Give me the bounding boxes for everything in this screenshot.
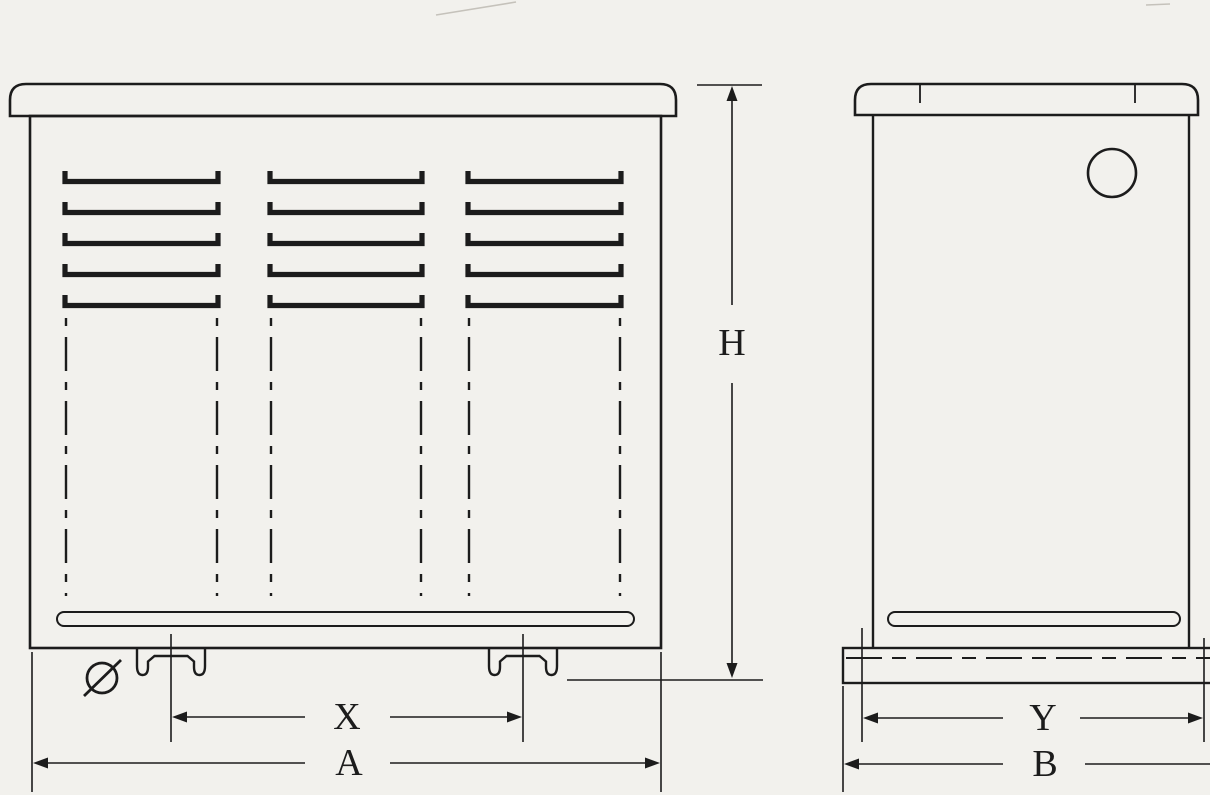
arrowhead-right: [507, 712, 522, 723]
scratch-mark: [1146, 4, 1170, 5]
side-bottom-slot: [888, 612, 1180, 626]
arrowhead-left: [863, 713, 878, 724]
front-cap: [10, 84, 676, 116]
scratch-mark: [436, 2, 516, 15]
louver: [65, 171, 218, 182]
louver: [65, 264, 218, 275]
side-cap: [855, 84, 1198, 115]
dim-h: [567, 85, 763, 680]
arrowhead-right: [1188, 713, 1203, 724]
dim-b: [843, 686, 1210, 792]
side-view: [843, 84, 1210, 683]
arrowhead-up: [727, 86, 738, 101]
louver: [270, 264, 422, 275]
louver: [468, 202, 621, 213]
arrowhead-left: [33, 758, 48, 769]
front-bottom-slot: [57, 612, 634, 626]
louver-grid: [65, 171, 621, 306]
diameter-symbol-icon: [84, 660, 121, 696]
louver: [270, 202, 422, 213]
lifting-hole: [1088, 149, 1136, 197]
louver: [65, 202, 218, 213]
enclosure-technical-drawing: X A H Y: [0, 0, 1210, 795]
dim-label-h: H: [718, 322, 745, 364]
front-body: [30, 116, 661, 648]
louver: [468, 295, 621, 306]
louver: [270, 171, 422, 182]
dim-label-x: X: [333, 696, 360, 738]
louver: [65, 295, 218, 306]
arrowhead-left: [172, 712, 187, 723]
arrowhead-down: [727, 663, 738, 678]
base-channel: [843, 648, 1210, 683]
louver: [468, 233, 621, 244]
dim-label-b: B: [1032, 743, 1057, 785]
diameter-slash: [84, 660, 121, 696]
scan-artifacts: [436, 2, 1170, 15]
louver: [270, 295, 422, 306]
louver: [270, 233, 422, 244]
drawing-sheet: X A H Y: [0, 0, 1210, 795]
dim-label-a: A: [335, 742, 363, 784]
arrowhead-right: [645, 758, 660, 769]
front-view: [10, 84, 676, 696]
louver: [468, 171, 621, 182]
louver: [65, 233, 218, 244]
dim-label-y: Y: [1029, 697, 1056, 739]
column-centerlines: [66, 318, 620, 596]
louver: [468, 264, 621, 275]
arrowhead-left: [844, 759, 859, 770]
